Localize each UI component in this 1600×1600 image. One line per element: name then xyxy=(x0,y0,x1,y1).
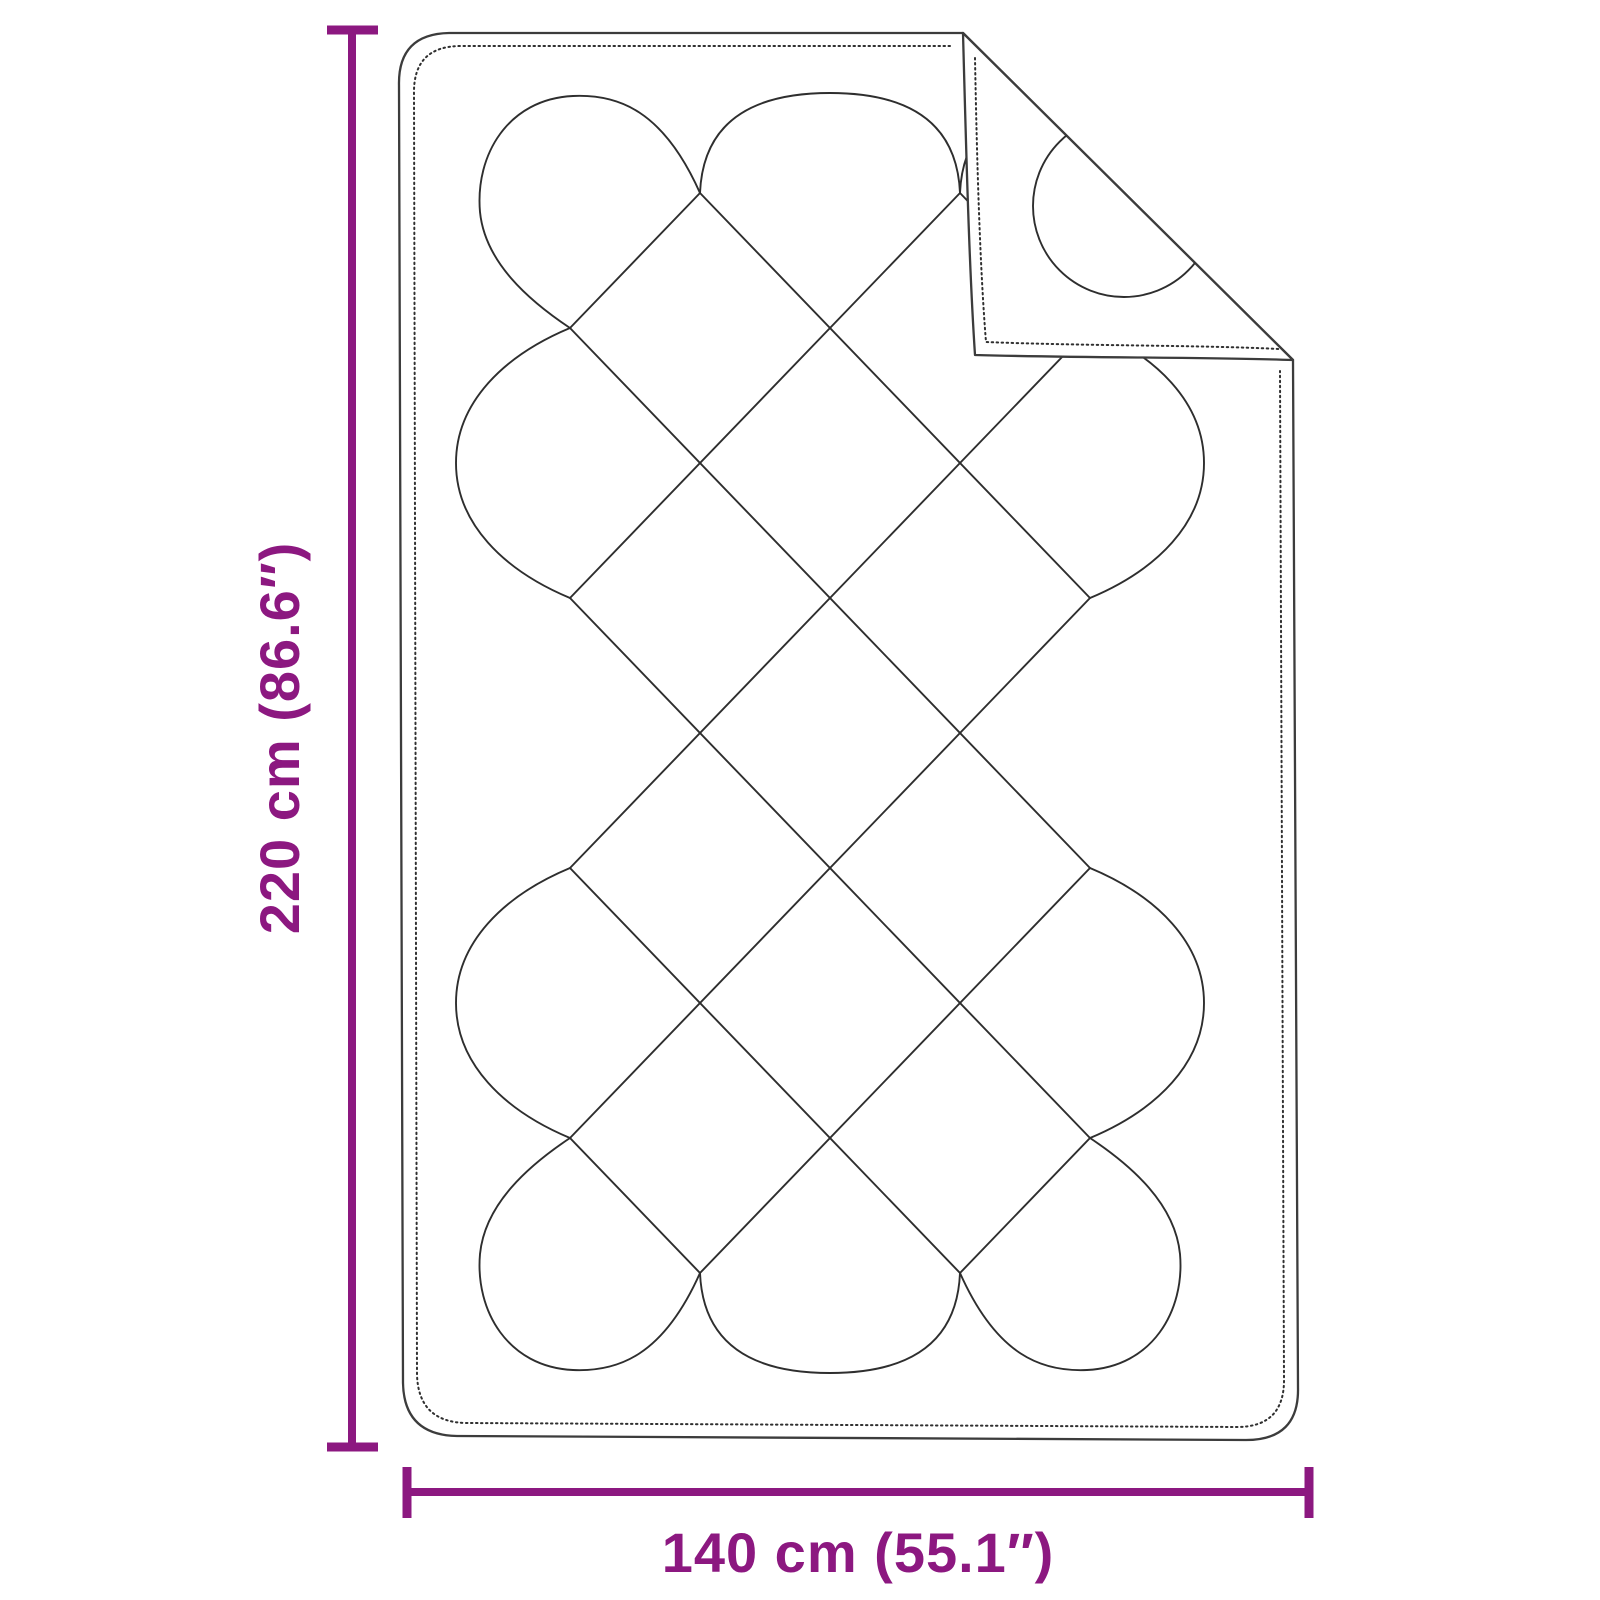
product-dimension-diagram: 220 cm (86.6″) 140 cm (55.1″) xyxy=(0,0,1600,1600)
height-dimension: 220 cm (86.6″) xyxy=(248,30,378,1447)
blanket-illustration xyxy=(399,33,1298,1440)
height-dimension-label: 220 cm (86.6″) xyxy=(248,542,311,935)
width-dimension: 140 cm (55.1″) xyxy=(403,1467,1313,1584)
folded-corner-flap xyxy=(963,33,1293,360)
width-dimension-label: 140 cm (55.1″) xyxy=(662,1521,1055,1584)
diagram-svg: 220 cm (86.6″) 140 cm (55.1″) xyxy=(0,0,1600,1600)
